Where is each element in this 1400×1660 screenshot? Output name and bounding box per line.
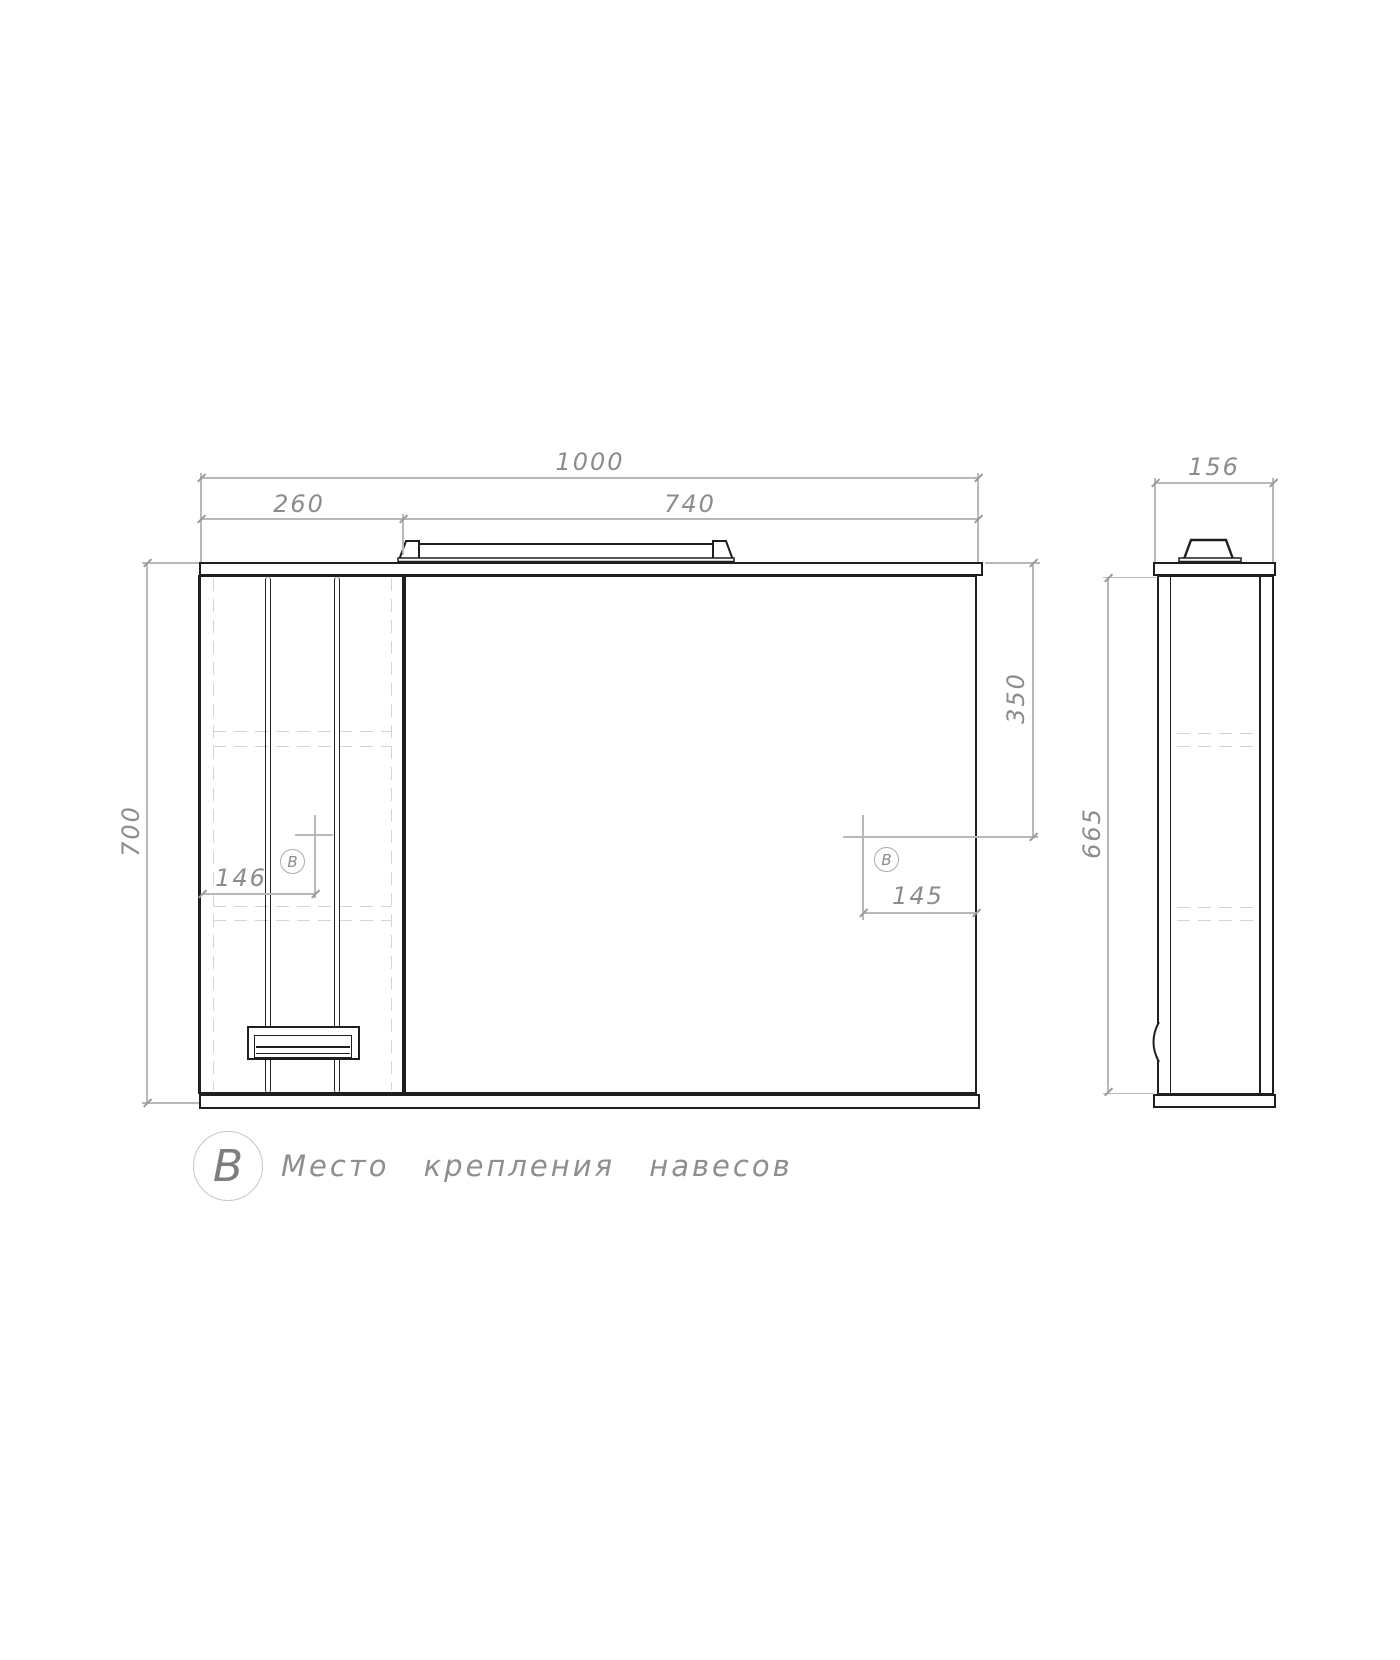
side-front-face-line (1170, 577, 1172, 1093)
side-lamp (1176, 536, 1244, 564)
hanger-cross-left-v (314, 815, 315, 898)
side-shelf1-hidden-bottom (1177, 746, 1258, 747)
side-shelf2-hidden-bottom (1177, 920, 1258, 921)
front-top-panel (199, 562, 983, 576)
ext-line (142, 562, 199, 563)
front-door-hidden-line-right (391, 578, 392, 1090)
dim-line-740 (403, 518, 978, 519)
front-right-wall (975, 575, 978, 1094)
front-bottom-strip (199, 1094, 980, 1109)
dim-label-156: 156 (1154, 453, 1274, 481)
dim-label-145: 145 (858, 882, 978, 910)
ext-line (1272, 478, 1273, 562)
front-shelf1-hidden-top (213, 731, 391, 732)
ext-line (1103, 577, 1156, 578)
side-body (1157, 575, 1274, 1095)
front-lamp (395, 536, 737, 564)
dim-label-740: 740 (630, 490, 750, 518)
legend-marker-letter: B (213, 1141, 243, 1192)
side-bottom-panel (1153, 1094, 1276, 1108)
front-mirror-divider (402, 575, 406, 1094)
dim-label-665: 665 (1078, 773, 1106, 893)
ext-line (142, 1102, 199, 1103)
dim-line-700 (146, 563, 147, 1103)
front-door-strip-right (334, 577, 340, 1093)
front-door-handle-groove1 (256, 1046, 350, 1048)
side-door-handle-arc (1147, 1020, 1161, 1064)
dim-line-350 (1032, 563, 1033, 837)
technical-drawing-mirror-cabinet: 1000 260 740 700 350 146 145 156 665 B B… (0, 0, 1400, 1660)
hanger-marker-left: B (280, 849, 305, 874)
side-top-panel (1153, 562, 1276, 576)
dim-label-1000: 1000 (530, 448, 650, 476)
dim-line-156 (1155, 482, 1273, 483)
dim-line-260 (201, 518, 403, 519)
legend-text: Место крепления навесов (281, 1149, 793, 1183)
front-body-top-edge (200, 575, 976, 577)
dim-line-145 (863, 912, 976, 913)
front-shelf2-hidden-bottom (213, 920, 391, 921)
dim-label-260: 260 (239, 490, 359, 518)
front-left-wall (198, 575, 201, 1094)
dim-line-665 (1107, 578, 1108, 1092)
dim-label-700: 700 (117, 771, 145, 891)
dim-line-146 (202, 893, 315, 894)
front-door-strip-left (265, 577, 271, 1093)
ext-line (1154, 478, 1155, 562)
side-back-face-line (1259, 577, 1261, 1093)
ext-line (1103, 1093, 1153, 1094)
side-shelf2-hidden-top (1177, 907, 1258, 908)
hanger-marker-right-letter: B (881, 851, 891, 869)
front-door-hidden-line-left (213, 578, 214, 1090)
dim-label-350: 350 (1002, 638, 1030, 758)
hanger-marker-left-letter: B (287, 853, 297, 871)
front-door-handle-groove2 (256, 1053, 350, 1055)
hanger-marker-right: B (874, 847, 899, 872)
side-shelf1-hidden-top (1177, 733, 1258, 734)
legend-marker-circle: B (193, 1131, 263, 1201)
hanger-cross-right-h (843, 836, 1038, 837)
dim-line-1000 (201, 477, 978, 478)
front-shelf1-hidden-bottom (213, 746, 391, 747)
front-shelf2-hidden-top (213, 906, 391, 907)
